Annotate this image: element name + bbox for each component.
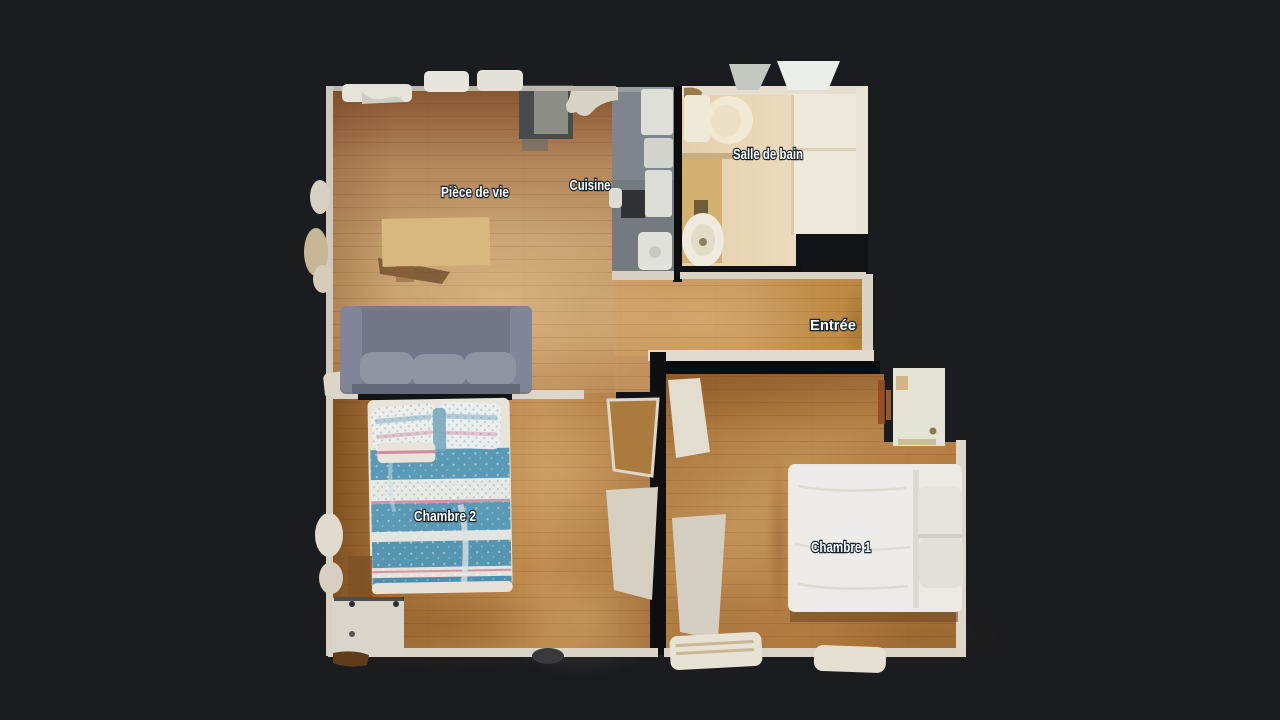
svg-text:Chambre 1: Chambre 1 [811, 540, 871, 556]
svg-text:Entrée: Entrée [810, 318, 856, 334]
svg-text:Cuisine: Cuisine [570, 178, 611, 194]
svg-text:Chambre 2: Chambre 2 [414, 509, 476, 525]
svg-text:Salle de bain: Salle de bain [733, 147, 803, 163]
svg-text:Pièce de vie: Pièce de vie [441, 185, 509, 201]
